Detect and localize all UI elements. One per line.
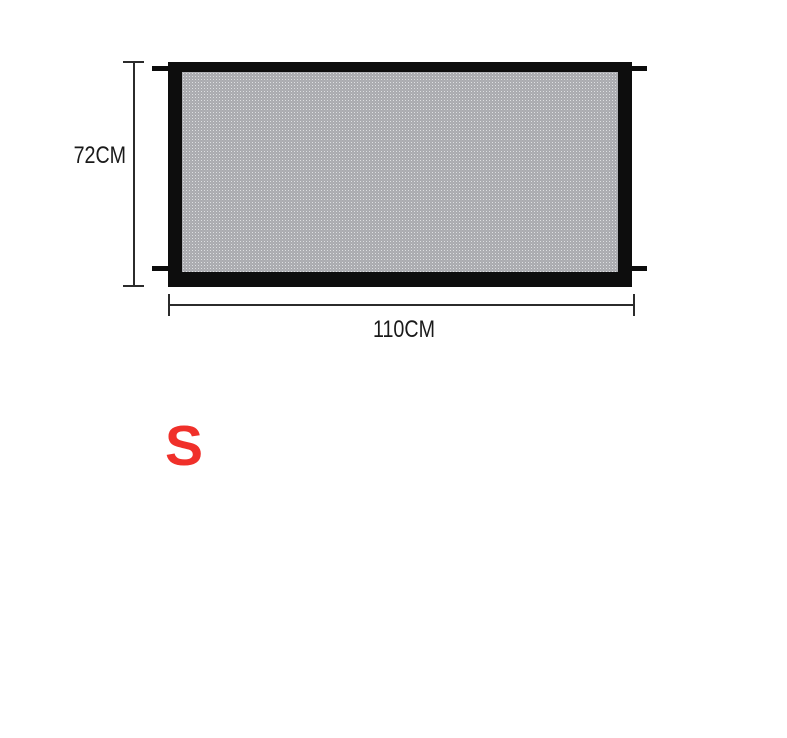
height-dimension-cap-bottom	[123, 285, 144, 287]
size-letter: S	[165, 418, 203, 475]
width-dimension-cap-left	[168, 294, 170, 316]
width-dimension-line	[168, 304, 635, 306]
gate-mesh	[182, 72, 618, 272]
width-dimension-label: 110CM	[363, 316, 445, 344]
gate-frame	[168, 62, 632, 287]
height-dimension-label: 72CM	[74, 142, 125, 170]
mounting-tab-top-left	[152, 66, 169, 71]
width-dimension-cap-right	[633, 294, 635, 316]
height-dimension-cap-top	[123, 61, 144, 63]
mounting-tab-top-right	[630, 66, 647, 71]
product-dimension-diagram: 72CM 110CM S	[0, 0, 787, 738]
mounting-tab-bottom-right	[630, 266, 647, 271]
mounting-tab-bottom-left	[152, 266, 169, 271]
height-dimension-line	[133, 62, 135, 286]
